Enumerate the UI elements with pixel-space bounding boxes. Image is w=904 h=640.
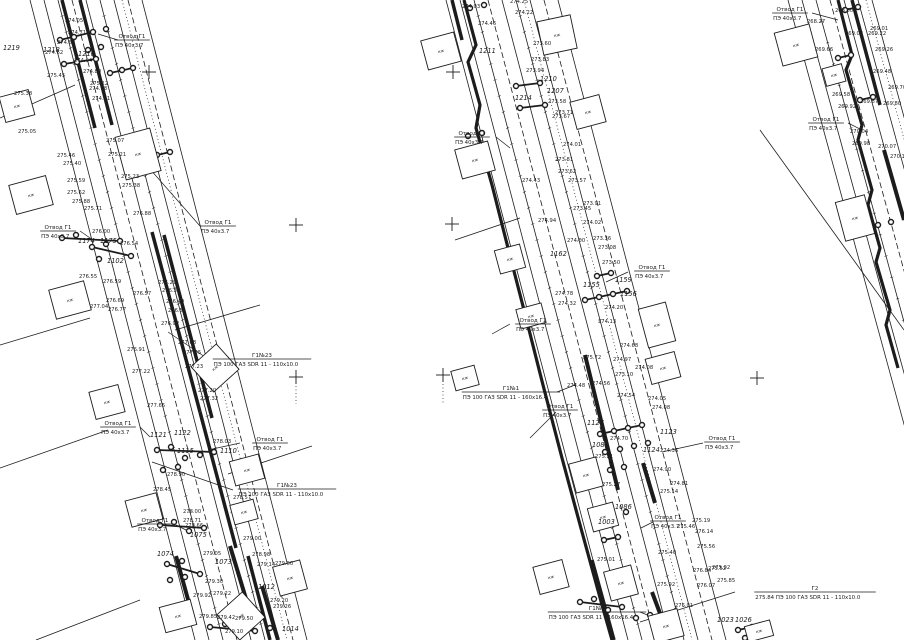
callout-name: Отвод Г1 (639, 265, 666, 271)
callout-spec: ПЭ 40x3.7 (115, 43, 143, 49)
point-number-label: 1121 (150, 431, 167, 439)
elevation-label: 276.92 (161, 321, 179, 327)
callout-spec: ПЭ 100 ГАЗ SDR 11 - 110x10.0 (214, 362, 299, 368)
callout-spec: ПЭ 40x3.7 (543, 413, 571, 419)
survey-point (646, 441, 651, 446)
callout-name: Г2 (812, 586, 819, 592)
building: кж (570, 95, 606, 130)
elevation-label: 273.45 (573, 206, 591, 212)
survey-point (876, 223, 881, 228)
elevation-label: 274.36 (660, 448, 678, 454)
elevation-label: 279.00 (275, 561, 293, 567)
building: кж (638, 302, 675, 348)
elevation-label: 277.22 (132, 369, 150, 375)
pipeline-callout: Г2275.84 ПЭ 100 ГАЗ SDR 11 - 110x10.0 (754, 586, 876, 601)
survey-point (608, 468, 613, 473)
callout-name: Отвод Г1 (459, 131, 486, 137)
callout-spec: ПЭ 40x3.7 (138, 527, 166, 533)
elevation-label: 269.66 (815, 47, 833, 53)
survey-point (598, 432, 603, 437)
elevation-label: 274.22 (515, 10, 533, 16)
callout-name: Г1№1 (503, 386, 520, 392)
callout-spec: 275.84 ПЭ 100 ГАЗ SDR 11 - 110x10.0 (755, 595, 861, 601)
callout-name: Г1№1 (589, 606, 606, 612)
elevation-label: 275.56 (697, 544, 715, 550)
elevation-label: 268.27 (807, 19, 825, 25)
elevation-label: 275.72 (583, 355, 601, 361)
building: кж (9, 176, 53, 215)
point-number-label: 1162 (550, 250, 567, 258)
elevation-label: 275.92 (657, 582, 675, 588)
pipeline-callout: Отвод Г1ПЭ 40x3.7 (704, 436, 740, 451)
elevation-label: 269.48 (873, 69, 891, 75)
elevation-label: 273.08 (598, 245, 616, 251)
pipeline-callout: Отвод Г1ПЭ 40x3.7 (252, 437, 288, 452)
survey-point (165, 562, 170, 567)
building: кж (774, 24, 818, 66)
survey-point (104, 27, 109, 32)
survey-point (736, 628, 741, 633)
survey-point (856, 5, 861, 10)
elevation-label: 274.64 (74, 58, 93, 64)
building: кж (159, 599, 197, 632)
callout-spec: ПЭ 40x3.7 (651, 524, 679, 530)
survey-point (168, 578, 173, 583)
elevation-label: 274.13 (598, 319, 616, 325)
callout-name: Отвод Г1 (257, 437, 284, 443)
survey-point (129, 254, 134, 259)
survey-point (612, 429, 617, 434)
survey-point (62, 62, 67, 67)
elevation-label: 279.92 (193, 593, 211, 599)
elevation-label: 274.02 (583, 220, 601, 226)
survey-line (142, 0, 307, 640)
building: кж (648, 609, 684, 640)
building: кж (604, 565, 639, 601)
elevation-label: 275.45 (47, 73, 65, 79)
grid-cross (289, 218, 303, 232)
survey-point (120, 68, 125, 73)
elevation-label: 279.05 (203, 551, 221, 557)
elevation-label: 278.03 (213, 439, 231, 445)
point-number-label: 1073 (215, 558, 232, 566)
elevation-label: 274.98 (89, 86, 107, 92)
elevation-label: 269.80 (883, 101, 901, 107)
building: кж (822, 64, 846, 87)
survey-point (180, 559, 185, 564)
elevation-label: 269.26 (875, 47, 893, 53)
survey-point (609, 271, 614, 276)
elevation-label: 275.71 (84, 206, 102, 212)
callout-name: Г1№23 (277, 483, 297, 489)
callout-spec: ПЭ 100 ГАЗ SDR 11 - 160x16.4 (463, 395, 548, 401)
elevation-label: 273.81 (555, 157, 573, 163)
elevation-label: 276.88 (133, 211, 151, 217)
elevation-label: 276.39 (162, 288, 180, 294)
elevation-label: 278.98 (252, 552, 270, 558)
survey-point (198, 572, 203, 577)
survey-point (169, 445, 174, 450)
survey-point (602, 538, 607, 543)
elevation-label: 279.42 (217, 615, 235, 621)
survey-point (622, 465, 627, 470)
grid-cross (445, 217, 459, 231)
point-number-label: 1159 (615, 276, 632, 284)
survey-line (816, 0, 904, 640)
survey-point (131, 66, 136, 71)
elevation-label: 273.62 (558, 169, 576, 175)
survey-line (114, 0, 279, 640)
elevation-label: 275.21 (108, 152, 126, 158)
point-connector-bar (600, 425, 642, 434)
elevation-label: 274.90 (653, 467, 671, 473)
elevation-label: 269.92 (838, 104, 856, 110)
elevation-label: 275.85 (717, 578, 735, 584)
elevation-label: 279.14 (257, 562, 276, 568)
elevation-label: 275.59 (67, 178, 85, 184)
elevation-label: 269.58 (832, 92, 850, 98)
callout-name: Отвод Г1 (142, 518, 169, 524)
building: кж (533, 560, 569, 595)
callout-name: Отвод Г1 (105, 421, 132, 427)
leader-line (98, 34, 118, 40)
elevation-label: 275.46 (57, 153, 75, 159)
elevation-label: 279.85 (199, 614, 217, 620)
survey-point (99, 45, 104, 50)
survey-line (544, 0, 712, 640)
elevation-label: 276.84 (693, 568, 712, 574)
pipeline-callout: Г1№1ПЭ 100 ГАЗ SDR 11 - 160x16.4 (548, 606, 646, 621)
survey-point (208, 625, 213, 630)
callout-spec: ПЭ 40x3.7 (41, 234, 69, 240)
elevation-label: 276.77 (108, 307, 126, 313)
elevation-label: 279.30 (205, 579, 223, 585)
point-connector-bar (516, 83, 540, 86)
callout-spec: ПЭ 40x3.7 (809, 126, 837, 132)
survey-point (889, 220, 894, 225)
pipeline-callout: Г1№23ПЭ 100 ГАЗ SDR 11 - 110x10.0 (238, 483, 336, 498)
elevation-label: 273.67 (552, 114, 570, 120)
elevation-label: 273.57 (568, 178, 586, 184)
callout-name: Отвод Г1 (45, 225, 72, 231)
callout-spec: ПЭ 40x3.7 (773, 16, 801, 22)
elevation-label: 274.08 (635, 365, 653, 371)
point-number-label: 1012 (258, 583, 275, 591)
callout-name: Г1№23 (252, 353, 272, 359)
survey-line (455, 218, 520, 240)
building: кж (516, 303, 546, 329)
leader-line (492, 324, 510, 334)
elevation-label: 276.07 (697, 583, 715, 589)
survey-point (97, 257, 102, 262)
survey-point (253, 629, 258, 634)
callout-name: Отвод Г1 (655, 515, 682, 521)
building: кж (49, 281, 92, 319)
survey-point (618, 447, 623, 452)
elevation-label: 279.10 (225, 629, 243, 635)
survey-point (578, 600, 583, 605)
callout-name: Отвод Г1 (813, 117, 840, 123)
elevation-label: 273.60 (533, 41, 551, 47)
elevation-label: 274.46 (478, 21, 496, 27)
survey-line (44, 0, 209, 640)
point-connector-bar (167, 564, 200, 574)
elevation-label: 275.05 (18, 129, 36, 135)
elevation-label: 274.08 (652, 405, 670, 411)
elevation-label: 275.23 (121, 174, 139, 180)
point-number-label: 1102 (107, 257, 124, 265)
elevation-label: 279.26 (273, 604, 291, 610)
survey-point (161, 468, 166, 473)
elevation-label: 277.23 (185, 364, 203, 370)
point-number-label: 1211 (479, 47, 496, 55)
survey-point (514, 84, 519, 89)
elevation-label: 276.51 (168, 308, 186, 314)
building: кж (421, 32, 462, 70)
callout-name: Отвод Г1 (777, 7, 804, 13)
elevation-label: 275.38 (14, 91, 32, 97)
survey-point (611, 292, 616, 297)
pipeline-callout: Отвод Г1ПЭ 40x3.7 (808, 117, 844, 132)
elevation-label: 269.02 (845, 31, 863, 37)
elevation-label: 274.25 (510, 0, 528, 5)
survey-point (168, 150, 173, 155)
survey-line (36, 600, 140, 640)
elevation-label: 276.49 (166, 299, 184, 305)
elevation-label: 275.40 (63, 161, 81, 167)
elevation-label: 277.65 (147, 403, 165, 409)
elevation-label: 274.54 (617, 393, 636, 399)
elevation-label: 273.94 (526, 68, 545, 74)
point-number-label: 1003 (598, 518, 615, 526)
callout-name: Отвод Г1 (547, 404, 574, 410)
elevation-label: 274.80 (83, 69, 101, 75)
elevation-label: 276.01 (675, 603, 693, 609)
elevation-label: 269.70 (888, 85, 904, 91)
survey-point (595, 274, 600, 279)
elevation-label: 274.81 (670, 481, 688, 487)
survey-point (91, 30, 96, 35)
elevation-label: 268.80 (835, 8, 853, 14)
point-number-label: 1110 (220, 447, 237, 455)
elevation-label: 274.94 (538, 218, 557, 224)
callout-spec: ПЭ 40x3.7 (101, 430, 129, 436)
survey-point (198, 453, 203, 458)
survey-point (90, 245, 95, 250)
survey-point (626, 426, 631, 431)
grid-cross (446, 65, 460, 79)
point-number-label: 1014 (282, 625, 299, 633)
survey-point (597, 295, 602, 300)
elevation-label: 275.02 (712, 565, 730, 571)
point-number-label: 1156 (620, 290, 637, 298)
elevation-label: 273.10 (615, 372, 633, 378)
elevation-label: 275.88 (72, 199, 90, 205)
survey-point (183, 456, 188, 461)
elevation-label: 274.56 (592, 381, 610, 387)
elevation-label: 274.03 (462, 4, 480, 10)
elevation-label: 273.36 (593, 236, 611, 242)
point-number-label: 1075 (190, 531, 207, 539)
survey-point (518, 106, 523, 111)
point-number-label: 1115 (177, 447, 194, 455)
pipeline-plan-canvas: кжкжкжкжкжкжкжкжкжкжкжкжкжкжкжкжкжкжкжкж… (0, 0, 904, 640)
elevation-label: 275.46 (677, 524, 695, 530)
point-number-label: 1207 (547, 87, 565, 95)
point-number-label: 1218 (43, 46, 60, 54)
point-number-label: 1086 (615, 503, 632, 511)
building: кж (230, 499, 258, 525)
point-number-label: 1216 (78, 50, 95, 58)
survey-point (183, 575, 188, 580)
callout-spec: ПЭ 40x3.7 (516, 327, 544, 333)
point-number-label: 1088 (592, 441, 609, 449)
elevation-label: 279.00 (243, 536, 261, 542)
callout-name: Отвод Г1 (709, 436, 736, 442)
survey-line (122, 0, 287, 640)
point-connector-bar (520, 105, 545, 108)
point-number-label: 1127 (587, 419, 605, 427)
survey-point (634, 616, 639, 621)
elevation-label: 278.00 (183, 509, 201, 515)
survey-point (155, 448, 160, 453)
elevation-label: 275.27 (602, 482, 620, 488)
elevation-label: 277.20 (198, 388, 216, 394)
grid-cross (142, 65, 156, 79)
elevation-label: 274.78 (555, 291, 573, 297)
point-number-label: 1123 (660, 428, 677, 436)
elevation-label: 270.04 (850, 129, 869, 135)
pipeline-callout: Отвод Г1ПЭ 40x3.7 (114, 34, 150, 49)
elevation-label: 277.04 (90, 304, 109, 310)
survey-point (849, 53, 854, 58)
elevation-label: 276.57 (133, 291, 151, 297)
survey-point (632, 444, 637, 449)
callout-spec: ПЭ 40x3.7 (635, 274, 663, 280)
elevation-label: 274.00 (567, 238, 585, 244)
survey-line (128, 0, 293, 640)
pipeline-callout: Отвод Г1ПЭ 40x3.7 (100, 421, 136, 436)
elevation-label: 273.83 (531, 57, 549, 63)
survey-point (108, 71, 113, 76)
survey-point (836, 56, 841, 61)
pipeline-callout: Отвод Г1ПЭ 40x3.7 (200, 220, 236, 235)
survey-point (616, 535, 621, 540)
elevation-label: 275.14 (660, 489, 679, 495)
elevation-label: 274.71 (68, 30, 86, 36)
point-number-label: 1214 (515, 94, 532, 102)
elevation-label: 279.50 (235, 616, 253, 622)
survey-point (212, 450, 217, 455)
elevation-label: 274.43 (522, 178, 540, 184)
survey-point (620, 605, 625, 610)
callout-spec: ПЭ 40x3.7 (455, 140, 483, 146)
elevation-label: 276.54 (120, 241, 139, 247)
point-number-label: 1219 (3, 44, 20, 52)
elevation-label: 276.91 (127, 347, 145, 353)
callout-spec: ПЭ 100 ГАЗ SDR 11 - 110x10.0 (239, 492, 324, 498)
callout-spec: ПЭ 40x3.7 (705, 445, 733, 451)
elevation-label: 269.98 (852, 141, 870, 147)
elevation-label: 276.00 (92, 229, 110, 235)
callout-spec: ПЭ 100 ГАЗ SDR 11 - 160x16.4 (549, 615, 634, 621)
point-number-label: 1074 (157, 550, 174, 558)
building: кж (537, 15, 577, 55)
survey-point (482, 3, 487, 8)
elevation-label: 278.90 (167, 472, 185, 478)
site-plan-drawing: кжкжкжкжкжкжкжкжкжкжкжкжкжкжкжкжкжкжкжкж… (0, 0, 904, 640)
elevation-label: 276.14 (695, 529, 714, 535)
elevation-label: 277.05 (183, 350, 201, 356)
building: кж (494, 244, 525, 274)
elevation-label: 274.05 (648, 396, 666, 402)
elevation-label: 274.01 (563, 142, 581, 148)
elevation-label: 277.08 (178, 340, 196, 346)
elevation-label: 278.45 (153, 487, 171, 493)
pipeline-callout: Отвод Г1ПЭ 40x3.7 (542, 404, 578, 419)
elevation-label: 275.07 (106, 138, 124, 144)
survey-line (175, 305, 260, 330)
building: кж (451, 365, 479, 391)
point-number-label: 1155 (583, 281, 600, 289)
survey-line (0, 318, 90, 345)
callout-spec: ПЭ 40x3.7 (253, 446, 281, 452)
grid-cross (436, 368, 450, 382)
callout-name: Отвод Г1 (119, 34, 146, 40)
building: кж (89, 385, 125, 420)
elevation-label: 269.87 (860, 99, 878, 105)
survey-line (86, 0, 251, 640)
elevation-label: 274.81 (92, 96, 110, 102)
survey-point (176, 465, 181, 470)
elevation-label: 277.32 (200, 396, 218, 402)
elevation-label: 276.29 (158, 280, 176, 286)
point-number-label: 1175 (100, 237, 117, 245)
elevation-label: 275.40 (658, 550, 676, 556)
elevation-label: 275.31 (595, 454, 613, 460)
callout-name: Отвод Г1 (205, 220, 232, 226)
survey-point (543, 103, 548, 108)
elevation-label: 274.32 (558, 301, 576, 307)
elevation-label: 274.68 (620, 343, 638, 349)
point-connector-bar (92, 247, 131, 256)
point-number-label: 1122 (174, 429, 191, 437)
elevation-label: 270.07 (878, 144, 896, 150)
elevation-label: 275.01 (597, 557, 615, 563)
elevation-label: 278.66 (185, 523, 203, 529)
pipeline-callout: Отвод Г1ПЭ 40x3.7 (772, 7, 808, 22)
elevation-label: 274.97 (613, 357, 631, 363)
elevation-label: 276.59 (103, 279, 121, 285)
survey-line (0, 430, 108, 468)
point-number-label: 1026 (735, 616, 752, 624)
point-number-label: 1210 (540, 75, 557, 83)
point-number-label: 1174 (78, 237, 95, 245)
survey-point (640, 423, 645, 428)
elevation-label: 274.70 (610, 436, 628, 442)
elevation-label: 275.62 (67, 190, 85, 196)
survey-point (592, 597, 597, 602)
building: кж (229, 454, 264, 486)
elevation-label: 273.58 (548, 99, 566, 105)
elevation-label: 276.55 (79, 274, 97, 280)
grid-cross (750, 371, 764, 385)
survey-line (30, 0, 195, 640)
elevation-label: 276.69 (106, 298, 124, 304)
elevation-label: 273.50 (602, 260, 620, 266)
pipeline-callout: Отвод Г1ПЭ 40x3.7 (634, 265, 670, 280)
elevation-label: 274.48 (567, 383, 585, 389)
